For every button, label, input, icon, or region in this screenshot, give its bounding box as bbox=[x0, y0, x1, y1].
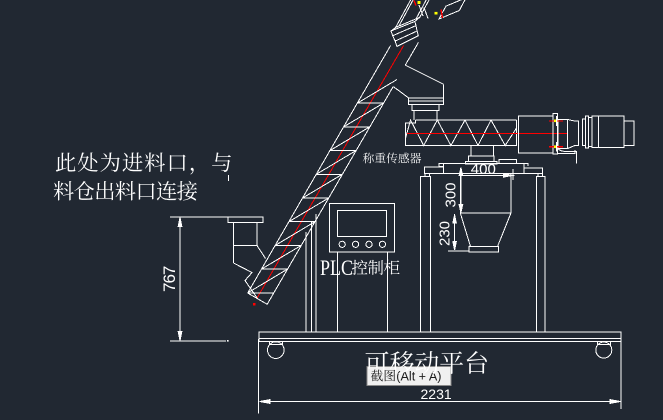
svg-text:PLC: PLC bbox=[320, 255, 353, 280]
svg-text:400: 400 bbox=[471, 161, 496, 178]
svg-text:300: 300 bbox=[442, 182, 459, 207]
svg-text:767: 767 bbox=[160, 266, 179, 292]
svg-text:230: 230 bbox=[437, 221, 454, 246]
svg-text:2231: 2231 bbox=[421, 386, 452, 402]
